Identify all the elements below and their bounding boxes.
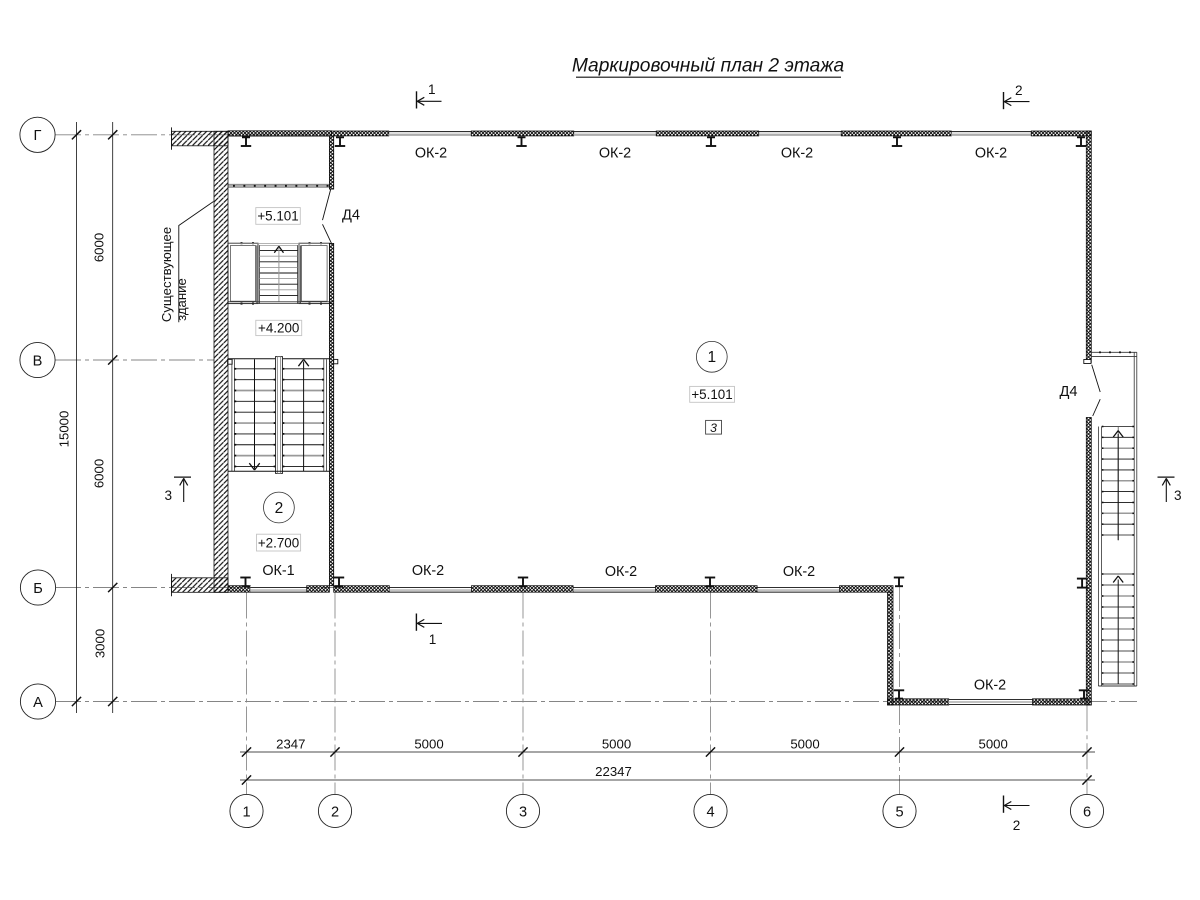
svg-text:ОК-2: ОК-2 (412, 563, 444, 579)
svg-text:В: В (33, 353, 43, 369)
svg-text:2: 2 (1013, 818, 1021, 833)
svg-text:22347: 22347 (595, 764, 632, 779)
svg-text:1: 1 (707, 349, 716, 366)
svg-text:Д4: Д4 (1060, 384, 1078, 400)
svg-text:1: 1 (428, 82, 436, 97)
svg-text:3: 3 (710, 421, 717, 435)
svg-text:3: 3 (1174, 488, 1182, 503)
svg-text:Маркировочный план 2 этажа: Маркировочный план 2 этажа (572, 56, 845, 77)
svg-text:А: А (33, 695, 43, 711)
svg-text:ОК-1: ОК-1 (262, 563, 294, 579)
svg-text:+4.200: +4.200 (258, 321, 299, 336)
svg-text:ОК-2: ОК-2 (415, 145, 447, 161)
svg-text:2: 2 (331, 804, 339, 820)
svg-text:ОК-2: ОК-2 (605, 564, 637, 580)
svg-text:Существующее: Существующее (159, 227, 174, 322)
svg-text:5: 5 (895, 804, 903, 820)
svg-text:3000: 3000 (93, 629, 108, 658)
svg-text:Б: Б (33, 581, 43, 597)
svg-text:+5.101: +5.101 (691, 387, 732, 402)
svg-text:5000: 5000 (602, 737, 631, 752)
svg-text:ОК-2: ОК-2 (975, 145, 1007, 161)
svg-text:3: 3 (165, 488, 173, 503)
svg-text:5000: 5000 (979, 737, 1008, 752)
svg-text:Д4: Д4 (342, 208, 360, 224)
svg-text:5000: 5000 (414, 737, 443, 752)
svg-text:ОК-2: ОК-2 (781, 145, 813, 161)
svg-text:Г: Г (34, 128, 42, 144)
svg-text:6000: 6000 (92, 233, 107, 262)
svg-text:+5.101: +5.101 (257, 209, 298, 224)
svg-text:6000: 6000 (92, 459, 107, 488)
svg-text:4: 4 (706, 804, 714, 820)
svg-text:3: 3 (519, 804, 527, 820)
svg-text:15000: 15000 (57, 411, 72, 448)
svg-text:+2.700: +2.700 (258, 536, 299, 551)
svg-text:1: 1 (242, 804, 250, 820)
svg-text:ОК-2: ОК-2 (599, 145, 631, 161)
svg-text:2347: 2347 (276, 737, 305, 752)
svg-text:1: 1 (429, 632, 437, 647)
svg-text:здание: здание (174, 278, 189, 321)
svg-text:2: 2 (1015, 83, 1023, 98)
svg-text:ОК-2: ОК-2 (974, 678, 1006, 694)
svg-text:5000: 5000 (790, 737, 819, 752)
svg-text:2: 2 (275, 500, 284, 517)
svg-text:6: 6 (1083, 804, 1091, 820)
svg-text:ОК-2: ОК-2 (783, 564, 815, 580)
